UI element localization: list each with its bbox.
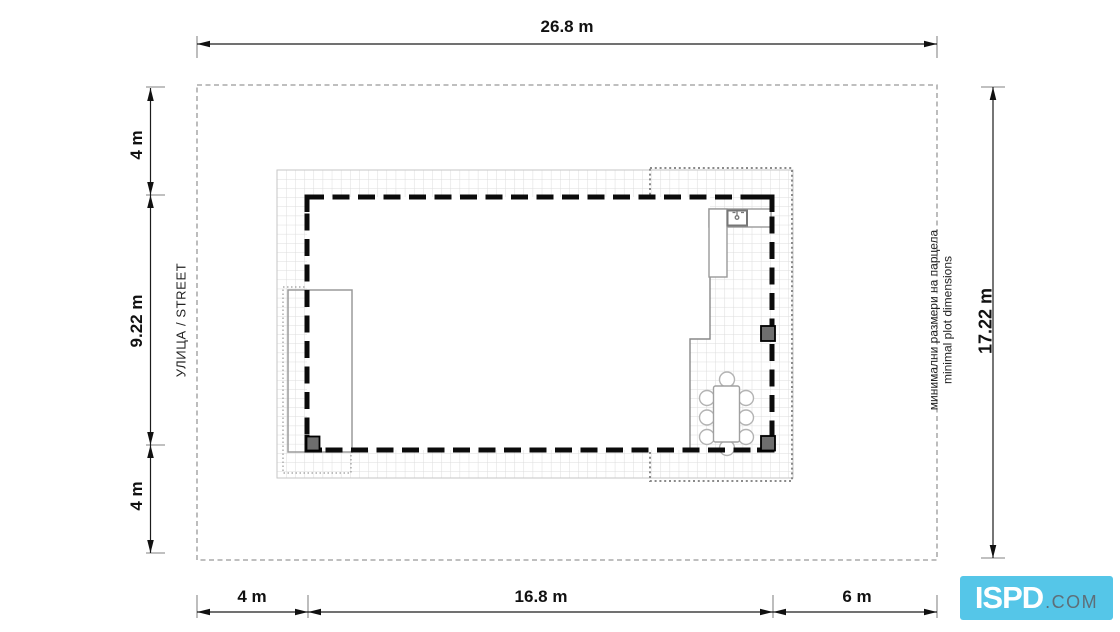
site-plan-page: 26.8 m 4 m 16.8 m 6 m 4 m 9.22 m 4 m УЛИ… xyxy=(0,0,1120,632)
chair xyxy=(739,430,754,445)
plot-note-en: minimal plot dimensions xyxy=(941,230,955,410)
chair xyxy=(700,430,715,445)
chair xyxy=(739,391,754,406)
dining-table xyxy=(714,386,740,442)
dim-label-bottom-right: 6 m xyxy=(842,587,871,607)
ispd-logo[interactable]: ISPD.COM xyxy=(960,576,1113,620)
dim-label-bottom-mid: 16.8 m xyxy=(515,587,568,607)
logo-brand-text: ISPD xyxy=(975,580,1043,615)
dim-label-left-top: 4 m xyxy=(127,130,147,159)
dim-label-left-bottom: 4 m xyxy=(127,481,147,510)
street-label: УЛИЦА / STREET xyxy=(174,263,189,378)
plot-note: минимални размери на парцела minimal plo… xyxy=(927,230,956,410)
logo-tld-text: .COM xyxy=(1045,592,1098,612)
column xyxy=(761,326,775,341)
plot-note-bg: минимални размери на парцела xyxy=(927,230,941,410)
chair xyxy=(700,391,715,406)
dim-label-top: 26.8 m xyxy=(541,17,594,37)
chair xyxy=(739,410,754,425)
column xyxy=(307,437,320,451)
dim-label-right: 17.22 m xyxy=(976,288,997,354)
chair xyxy=(700,410,715,425)
chair xyxy=(720,372,735,387)
dim-label-left-mid: 9.22 m xyxy=(127,295,147,348)
column xyxy=(761,436,775,451)
dim-label-bottom-left: 4 m xyxy=(237,587,266,607)
